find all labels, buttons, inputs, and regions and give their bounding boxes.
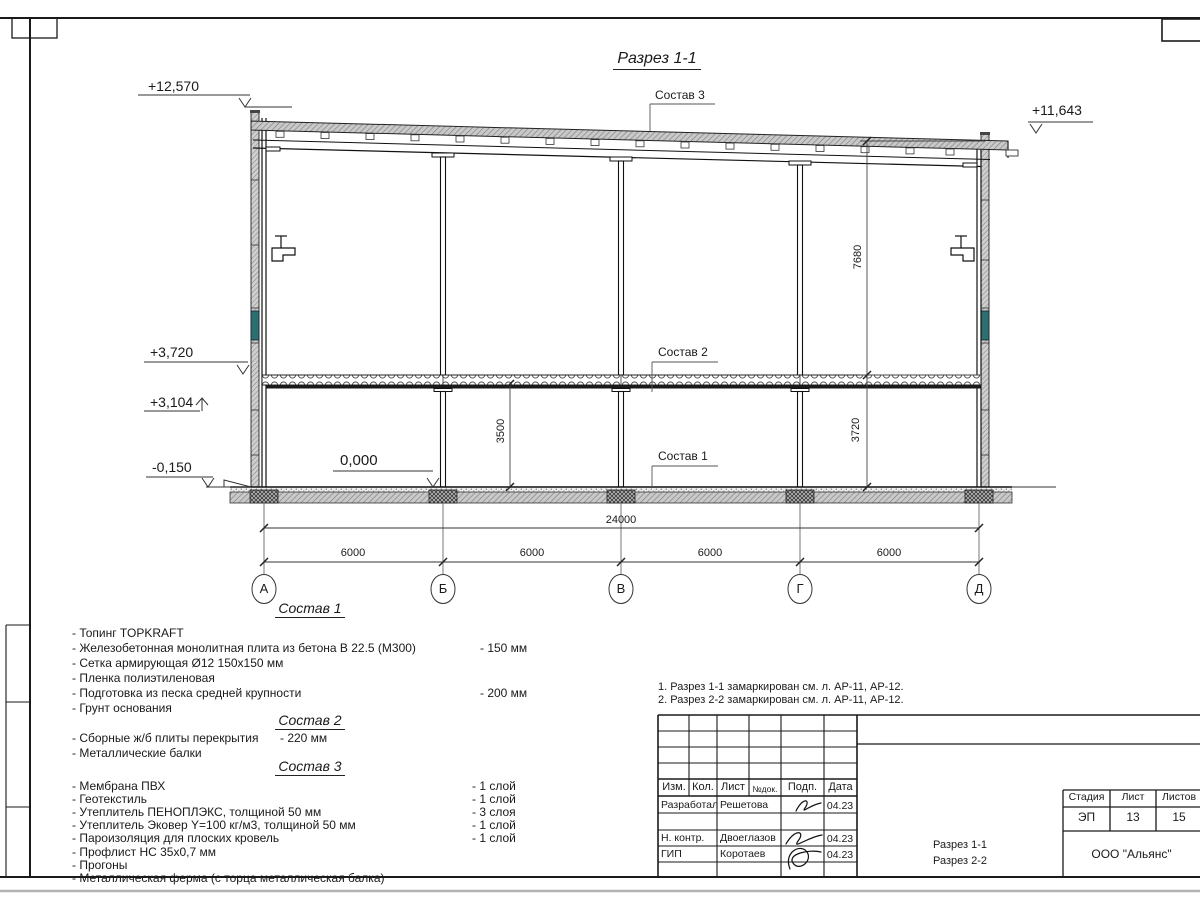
label-sostav2-callout: Состав 2 — [658, 345, 708, 359]
material-item: - Утеплитель Эковер Y=100 кг/м3, толщино… — [72, 818, 612, 832]
elevation-floor-zero: 0,000 — [340, 452, 378, 469]
label-sostav1-callout: Состав 1 — [658, 449, 708, 463]
note-line-2: 2. Разрез 2-2 замаркирован см. л. АР-11,… — [658, 694, 904, 706]
signature-korotaev — [788, 848, 821, 869]
columns-upper — [266, 147, 977, 375]
dim-bay-4: 6000 — [849, 547, 929, 559]
material-item: - Прогоны — [72, 858, 612, 872]
sostav1-heading: Состав 1 — [275, 600, 344, 618]
material-item: - Мембрана ПВХ- 1 слой — [72, 779, 612, 793]
dimension-lines-vertical — [506, 137, 985, 491]
tb-header-kol: Кол. — [689, 781, 717, 793]
roof-gutter-end — [1006, 150, 1018, 156]
sostav2-heading: Состав 2 — [275, 712, 344, 730]
axis-label-v: В — [609, 581, 633, 596]
dim-bay-1: 6000 — [313, 547, 393, 559]
tb-header-podp: Подп. — [781, 781, 824, 793]
roof-assembly — [251, 121, 1018, 167]
elevation-roof-left: +12,570 — [148, 78, 199, 94]
window-left — [251, 311, 259, 340]
tb-stage-value: ЭП — [1064, 810, 1109, 824]
dim-height-lower: 3720 — [850, 400, 862, 460]
wall-right-top-cap — [980, 132, 990, 135]
tb-header-list: Лист — [717, 781, 749, 793]
sostav1-heading-wrap: Состав 1 — [255, 600, 365, 618]
sostav3-heading-wrap: Состав 3 — [255, 758, 365, 776]
wall-right — [981, 134, 989, 487]
wall-left — [251, 112, 259, 487]
elevation-roof-right: +11,643 — [1032, 102, 1082, 118]
material-item: - Пароизоляция для плоских кровель- 1 сл… — [72, 831, 612, 845]
section-drawing — [0, 0, 1200, 900]
elevation-beam-bottom: +3,104 — [150, 394, 193, 410]
frame-corner-box-left — [12, 18, 57, 38]
tb-stage-header: Стадия — [1064, 791, 1109, 803]
note-line-1: 1. Разрез 1-1 замаркирован см. л. АР-11,… — [658, 681, 904, 693]
page-title: Разрез 1-1 — [613, 50, 700, 70]
floor-slab-assembly — [262, 375, 981, 389]
axis-label-b: Б — [431, 581, 455, 596]
tb-name-dvoeglazov: Двоеглазов — [720, 832, 776, 844]
axis-label-a: А — [252, 581, 276, 596]
signature-reshetova — [796, 801, 821, 811]
elevation-slab-top: +3,720 — [150, 344, 193, 360]
tb-doc-title-1: Разрез 1-1 — [900, 839, 1020, 851]
material-item: - Металлическая ферма (с торца металличе… — [72, 871, 612, 885]
tb-date-1: 04.23 — [825, 800, 855, 812]
tb-header-data: Дата — [824, 781, 857, 793]
page-title-wrap: Разрез 1-1 — [582, 50, 732, 68]
drawing-sheet: Разрез 1-1 Состав 3 Состав 2 Состав 1 +1… — [0, 0, 1200, 900]
material-item: - Топинг TOPKRAFT — [72, 626, 612, 640]
hollow-core-slab — [262, 375, 981, 385]
tb-doc-title-2: Разрез 2-2 — [900, 855, 1020, 867]
tb-name-korotaev: Коротаев — [720, 848, 765, 860]
material-item: - Профлист НС 35x0,7 мм — [72, 845, 612, 859]
frame-corner-box-right — [1162, 19, 1200, 41]
dim-height-upper: 7680 — [852, 227, 864, 287]
wall-left-top-cap — [250, 110, 260, 113]
tb-header-ndok: №док. — [749, 784, 781, 794]
tb-sheet-header: Лист — [1111, 791, 1155, 803]
dim-height-room: 3500 — [495, 401, 507, 461]
material-item: - Утеплитель ПЕНОПЛЭКС, толщиной 50 мм- … — [72, 805, 612, 819]
columns-lower — [434, 389, 809, 488]
floor-beam — [266, 385, 981, 389]
signature-dvoeglazov — [786, 833, 822, 844]
window-right — [981, 311, 989, 340]
tb-date-3: 04.23 — [825, 849, 855, 861]
sostav2-heading-wrap: Состав 2 — [255, 712, 365, 730]
grade-wedge — [224, 480, 251, 487]
sostav3-heading: Состав 3 — [275, 758, 344, 776]
dim-bay-3: 6000 — [670, 547, 750, 559]
axis-label-d: Д — [967, 581, 991, 596]
tb-sheet-value: 13 — [1111, 810, 1155, 824]
material-item: - Пленка полиэтиленовая — [72, 671, 612, 685]
tb-sheets-value: 15 — [1157, 810, 1200, 824]
tb-role-gip: ГИП — [661, 848, 682, 860]
tb-role-razrabotal: Разработал — [661, 799, 718, 811]
tb-sheets-header: Листов — [1157, 791, 1200, 803]
material-item: - Сборные ж/б плиты перекрытия- 220 мм — [72, 731, 612, 745]
tb-name-reshetova: Решетова — [720, 799, 768, 811]
axis-label-g: Г — [788, 581, 812, 596]
tb-date-2: 04.23 — [825, 833, 855, 845]
label-sostav3-callout: Состав 3 — [655, 88, 705, 102]
leader-lines — [650, 104, 718, 487]
material-item: - Железобетонная монолитная плита из бет… — [72, 641, 612, 655]
material-item: - Сетка армирующая Ø12 150x150 мм — [72, 656, 612, 670]
dim-overall: 24000 — [571, 514, 671, 526]
material-item: - Подготовка из песка средней крупности-… — [72, 686, 612, 700]
elevation-ground-outside: -0,150 — [152, 459, 192, 475]
signatures — [786, 801, 822, 869]
roof-sandwich — [251, 121, 1008, 150]
tb-company: ООО "Альянс" — [1063, 847, 1200, 861]
dim-bay-2: 6000 — [492, 547, 572, 559]
left-margin-table — [6, 625, 30, 877]
material-item: - Геотекстиль- 1 слой — [72, 792, 612, 806]
tb-role-nkontr: Н. контр. — [661, 832, 704, 844]
tb-header-izm: Изм. — [659, 781, 689, 793]
